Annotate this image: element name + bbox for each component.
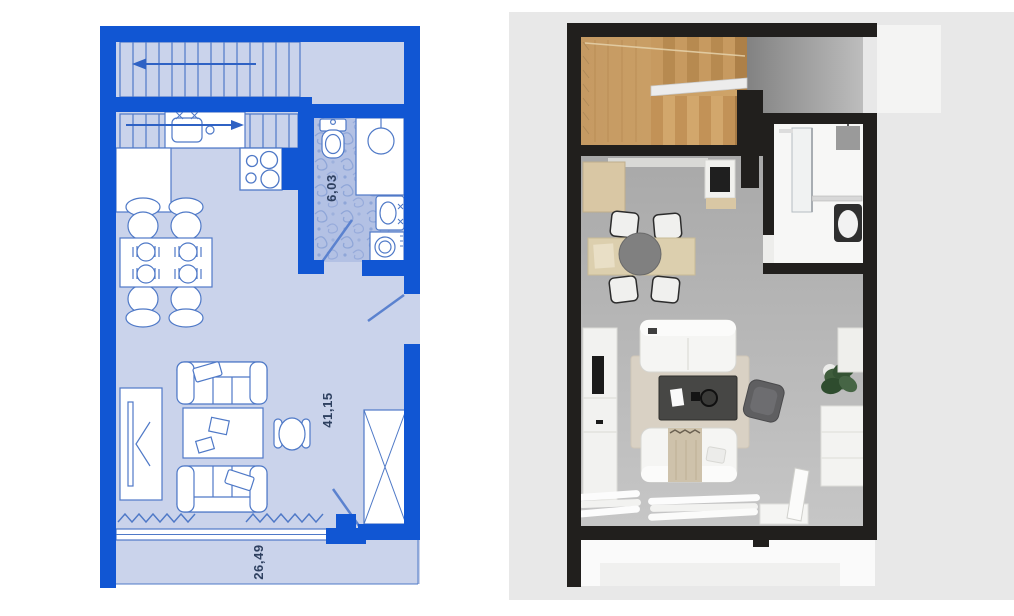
wardrobe-2d bbox=[364, 410, 406, 524]
wall-stove-nook bbox=[282, 148, 298, 190]
window-2d bbox=[116, 529, 328, 540]
kitchen-cabinet-3d bbox=[583, 162, 625, 212]
wall-window-stub-top bbox=[336, 514, 356, 530]
wall-left-3d bbox=[567, 23, 581, 587]
wall-top bbox=[100, 26, 420, 42]
balcony-3d bbox=[581, 540, 875, 586]
sofa-top-3d bbox=[640, 320, 736, 372]
upper-hall-3d bbox=[747, 37, 863, 113]
wall-under-stairs-3d bbox=[581, 145, 747, 156]
stair-steps-lower-3d bbox=[651, 96, 747, 145]
cooktop-3d bbox=[710, 167, 730, 192]
wall-bottom-stub-3d bbox=[753, 538, 769, 547]
dimension-terrace: 26,49 bbox=[251, 544, 266, 580]
wall-bathroom-top bbox=[300, 104, 420, 118]
floor-plan-comparison: 6,03 41,15 26,49 bbox=[0, 0, 1014, 616]
coffee-table-3d bbox=[659, 376, 737, 420]
wall-bathroom-left-3d bbox=[763, 113, 774, 235]
tv-console-3d bbox=[583, 328, 617, 500]
bathroom-shelf-3d bbox=[812, 196, 862, 201]
wall-stair-chunk-3d bbox=[737, 90, 763, 156]
bathroom-wall-item bbox=[779, 129, 793, 133]
bathroom-3d bbox=[763, 116, 863, 263]
washing-machine-2d bbox=[370, 232, 404, 262]
wall-kitchen-chunk-3d bbox=[741, 156, 759, 188]
tv-stand-2d bbox=[120, 388, 162, 500]
wall-wardrobe-stub bbox=[358, 524, 420, 540]
wall-left bbox=[100, 26, 116, 588]
coffee-table-2d bbox=[183, 408, 263, 458]
wall-right-upper bbox=[404, 26, 420, 294]
sofa-bottom-3d bbox=[641, 428, 737, 482]
sofa-bottom-2d bbox=[177, 466, 267, 512]
wall-bathroom-bottom-3d bbox=[763, 263, 863, 274]
wall-shelf-3d bbox=[838, 328, 864, 372]
dimension-living-room: 41,15 bbox=[320, 392, 335, 428]
wall-right-lower bbox=[404, 344, 420, 528]
shower-unit-3d bbox=[836, 126, 860, 150]
wall-bathroom-left bbox=[298, 104, 314, 264]
wall-bottom-3d bbox=[567, 526, 877, 540]
toilet-3d bbox=[834, 204, 862, 242]
floor-plan-2d: 6,03 41,15 26,49 bbox=[100, 26, 420, 588]
wall-bathroom-top-3d bbox=[763, 113, 863, 124]
wall-window-stub bbox=[326, 528, 366, 544]
kitchen-sink-2d bbox=[165, 112, 245, 148]
sofa-top-2d bbox=[177, 361, 267, 404]
plans-graphic: 6,03 41,15 26,49 bbox=[0, 0, 1014, 616]
toilet-2d bbox=[320, 119, 346, 158]
wall-top-3d bbox=[567, 23, 877, 37]
shower-2d bbox=[356, 118, 404, 195]
storage-cabinet-3d bbox=[821, 406, 865, 486]
cooktop-2d bbox=[240, 148, 282, 190]
wall-right-3d bbox=[863, 113, 877, 540]
staircase-3d bbox=[581, 37, 747, 145]
backing-top-right bbox=[877, 25, 941, 113]
wall-bathroom-bottom bbox=[362, 260, 420, 276]
floor-plan-3d bbox=[509, 12, 1014, 600]
dimension-bathroom: 6,03 bbox=[324, 174, 339, 202]
tv-3d bbox=[592, 356, 604, 394]
washbasin-2d bbox=[376, 196, 404, 230]
kitchen-shelf-3d bbox=[706, 198, 736, 209]
bathroom-door-opening-3d bbox=[763, 235, 774, 263]
armchair-2d bbox=[274, 418, 310, 450]
wall-mid-stairs bbox=[116, 97, 312, 112]
wall-bathroom-bottom-stub bbox=[298, 260, 324, 274]
shower-glass-3d bbox=[792, 128, 812, 212]
round-tray-3d bbox=[619, 233, 661, 275]
throw-blanket-3d bbox=[668, 428, 702, 482]
dining-table-2d bbox=[120, 238, 212, 287]
placemat-3d bbox=[593, 243, 615, 268]
